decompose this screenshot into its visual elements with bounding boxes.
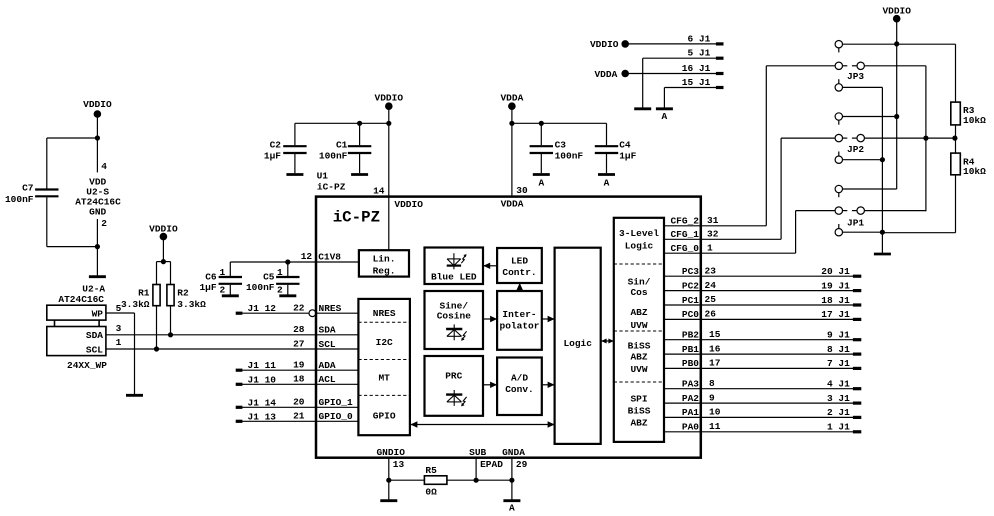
svg-text:GPIO: GPIO xyxy=(373,410,396,421)
svg-text:19: 19 xyxy=(293,360,305,371)
svg-text:3 J1: 3 J1 xyxy=(827,393,850,404)
svg-text:AT24C16C: AT24C16C xyxy=(58,294,104,305)
svg-text:5 J1: 5 J1 xyxy=(687,48,710,59)
svg-text:31: 31 xyxy=(707,215,719,226)
svg-text:R2: R2 xyxy=(177,287,189,298)
svg-text:4: 4 xyxy=(101,161,107,172)
svg-text:WP: WP xyxy=(92,308,104,319)
svg-text:VDDIO: VDDIO xyxy=(394,199,423,210)
svg-text:U1: U1 xyxy=(317,170,329,181)
svg-text:Logic: Logic xyxy=(563,338,592,349)
svg-text:J1 13: J1 13 xyxy=(248,411,277,422)
svg-text:2: 2 xyxy=(277,284,283,295)
svg-text:SCL: SCL xyxy=(86,344,103,355)
svg-text:UVW: UVW xyxy=(630,364,647,375)
svg-text:1: 1 xyxy=(277,267,283,278)
svg-text:J1 12: J1 12 xyxy=(248,303,277,314)
svg-text:JP3: JP3 xyxy=(847,71,864,82)
svg-text:SUB: SUB xyxy=(469,447,486,458)
svg-text:PC2: PC2 xyxy=(682,280,699,291)
svg-text:24XX_WP: 24XX_WP xyxy=(67,360,107,371)
svg-text:Reg.: Reg. xyxy=(373,266,396,277)
svg-text:21: 21 xyxy=(293,411,305,422)
svg-text:15: 15 xyxy=(709,329,721,340)
svg-text:VDDIO: VDDIO xyxy=(590,39,619,50)
svg-text:VDDIO: VDDIO xyxy=(149,223,178,234)
svg-text:1µF: 1µF xyxy=(619,150,636,161)
svg-text:6 J1: 6 J1 xyxy=(687,33,710,44)
svg-text:26: 26 xyxy=(705,309,717,320)
svg-text:VDDA: VDDA xyxy=(501,199,524,210)
svg-text:GND: GND xyxy=(89,207,106,218)
svg-text:PB0: PB0 xyxy=(682,358,699,369)
svg-text:1: 1 xyxy=(707,242,713,253)
svg-text:J1 10: J1 10 xyxy=(248,374,277,385)
svg-text:9: 9 xyxy=(709,392,715,403)
svg-text:PB1: PB1 xyxy=(682,344,699,355)
svg-text:PC0: PC0 xyxy=(682,309,699,320)
svg-text:GPIO_1: GPIO_1 xyxy=(319,397,354,408)
svg-text:10: 10 xyxy=(709,407,721,418)
svg-text:1: 1 xyxy=(116,337,122,348)
svg-text:U2-A: U2-A xyxy=(82,283,105,294)
svg-text:4 J1: 4 J1 xyxy=(827,379,850,390)
svg-text:100nF: 100nF xyxy=(5,194,34,205)
svg-text:1: 1 xyxy=(220,267,226,278)
svg-text:Lin.: Lin. xyxy=(373,254,396,265)
svg-text:Sin/: Sin/ xyxy=(628,277,651,288)
svg-text:0Ω: 0Ω xyxy=(425,487,437,498)
svg-text:23: 23 xyxy=(705,265,717,276)
svg-text:18: 18 xyxy=(293,374,305,385)
svg-text:PA1: PA1 xyxy=(682,407,699,418)
svg-text:UVW: UVW xyxy=(630,320,647,331)
svg-text:10kΩ: 10kΩ xyxy=(963,115,986,126)
svg-text:ABZ: ABZ xyxy=(630,418,647,429)
svg-text:A: A xyxy=(604,178,610,189)
svg-text:ABZ: ABZ xyxy=(630,307,647,318)
svg-text:2: 2 xyxy=(101,218,107,229)
svg-text:25: 25 xyxy=(705,294,717,305)
svg-text:I2C: I2C xyxy=(376,337,393,348)
svg-text:PB2: PB2 xyxy=(682,330,699,341)
svg-text:Cosine: Cosine xyxy=(437,311,472,322)
svg-text:J1 14: J1 14 xyxy=(248,397,277,408)
svg-text:17 J1: 17 J1 xyxy=(821,309,850,320)
svg-text:iC-PZ: iC-PZ xyxy=(333,208,380,226)
svg-text:C6: C6 xyxy=(205,271,217,282)
svg-text:EPAD: EPAD xyxy=(480,459,503,470)
svg-text:13: 13 xyxy=(393,459,405,470)
svg-text:1µF: 1µF xyxy=(199,282,216,293)
svg-text:100nF: 100nF xyxy=(555,150,584,161)
svg-text:29: 29 xyxy=(516,459,528,470)
svg-text:MT: MT xyxy=(378,373,390,384)
svg-text:30: 30 xyxy=(516,185,528,196)
svg-text:1µF: 1µF xyxy=(264,150,281,161)
svg-text:GPIO_0: GPIO_0 xyxy=(319,411,354,422)
svg-text:C4: C4 xyxy=(619,140,631,151)
svg-text:Blue LED: Blue LED xyxy=(431,272,477,283)
svg-text:8: 8 xyxy=(709,378,715,389)
svg-text:A/D: A/D xyxy=(511,373,528,384)
svg-text:14: 14 xyxy=(373,185,385,196)
svg-text:CFG_0: CFG_0 xyxy=(670,243,699,254)
svg-text:11: 11 xyxy=(709,421,721,432)
svg-text:C5: C5 xyxy=(263,271,275,282)
svg-text:A: A xyxy=(509,502,515,513)
svg-text:R1: R1 xyxy=(138,287,150,298)
svg-text:iC-PZ: iC-PZ xyxy=(317,182,346,193)
svg-text:VDDA: VDDA xyxy=(594,69,617,80)
svg-text:3: 3 xyxy=(116,323,122,334)
svg-text:VDDIO: VDDIO xyxy=(882,6,911,17)
svg-text:SPI: SPI xyxy=(630,394,647,405)
svg-text:ABZ: ABZ xyxy=(630,351,647,362)
svg-text:SCL: SCL xyxy=(319,339,336,350)
svg-text:2 J1: 2 J1 xyxy=(827,407,850,418)
svg-text:ACL: ACL xyxy=(319,374,336,385)
svg-text:A: A xyxy=(538,178,544,189)
svg-text:JP1: JP1 xyxy=(847,218,864,229)
svg-text:Cos: Cos xyxy=(630,287,647,298)
svg-text:PA3: PA3 xyxy=(682,379,699,390)
svg-text:20: 20 xyxy=(293,397,305,408)
svg-text:GNDA: GNDA xyxy=(502,447,525,458)
svg-text:3.3kΩ: 3.3kΩ xyxy=(121,299,150,310)
svg-text:10kΩ: 10kΩ xyxy=(963,166,986,177)
svg-text:A: A xyxy=(662,111,668,122)
svg-text:PC3: PC3 xyxy=(682,266,699,277)
svg-text:19 J1: 19 J1 xyxy=(821,280,850,291)
svg-text:C1: C1 xyxy=(336,140,348,151)
svg-text:VDDIO: VDDIO xyxy=(83,99,112,110)
svg-text:Inter-: Inter- xyxy=(502,309,536,320)
svg-text:CFG_2: CFG_2 xyxy=(670,216,699,227)
svg-text:22: 22 xyxy=(293,303,305,314)
svg-text:BiSS: BiSS xyxy=(628,341,651,352)
svg-text:27: 27 xyxy=(293,338,305,349)
svg-text:R5: R5 xyxy=(425,465,437,476)
svg-text:Logic: Logic xyxy=(625,241,654,252)
svg-text:VDDIO: VDDIO xyxy=(375,93,404,104)
svg-text:7 J1: 7 J1 xyxy=(827,358,850,369)
svg-text:VDDA: VDDA xyxy=(500,93,523,104)
svg-text:3.3kΩ: 3.3kΩ xyxy=(177,299,206,310)
svg-text:SDA: SDA xyxy=(319,325,336,336)
svg-text:BiSS: BiSS xyxy=(628,406,651,417)
svg-text:J1 11: J1 11 xyxy=(248,360,277,371)
svg-text:2: 2 xyxy=(220,284,226,295)
svg-text:polator: polator xyxy=(500,320,540,331)
svg-text:8 J1: 8 J1 xyxy=(827,344,850,355)
svg-text:NRES: NRES xyxy=(373,308,396,319)
svg-text:24: 24 xyxy=(705,280,717,291)
svg-text:C7: C7 xyxy=(22,183,34,194)
svg-text:LED: LED xyxy=(511,255,528,266)
svg-text:Conv.: Conv. xyxy=(505,384,534,395)
svg-text:ADA: ADA xyxy=(319,360,336,371)
svg-text:PA2: PA2 xyxy=(682,393,699,404)
svg-text:18 J1: 18 J1 xyxy=(821,295,850,306)
svg-text:C1V8: C1V8 xyxy=(318,252,341,263)
svg-text:12: 12 xyxy=(301,251,313,262)
svg-text:28: 28 xyxy=(293,324,305,335)
svg-text:GNDIO: GNDIO xyxy=(376,447,405,458)
svg-text:C2: C2 xyxy=(270,140,282,151)
svg-text:C3: C3 xyxy=(555,140,567,151)
svg-text:9 J1: 9 J1 xyxy=(827,330,850,341)
svg-text:16: 16 xyxy=(709,343,721,354)
svg-text:JP2: JP2 xyxy=(847,144,864,155)
svg-text:15 J1: 15 J1 xyxy=(682,77,711,88)
svg-text:Contr.: Contr. xyxy=(502,267,536,278)
svg-text:CFG_1: CFG_1 xyxy=(670,229,699,240)
svg-text:1 J1: 1 J1 xyxy=(827,422,850,433)
svg-text:SDA: SDA xyxy=(86,330,103,341)
svg-text:PA0: PA0 xyxy=(682,422,699,433)
svg-text:100nF: 100nF xyxy=(246,282,275,293)
svg-text:17: 17 xyxy=(709,358,721,369)
svg-text:NRES: NRES xyxy=(319,303,342,314)
svg-text:PC1: PC1 xyxy=(682,295,699,306)
svg-text:32: 32 xyxy=(707,229,719,240)
svg-text:PRC: PRC xyxy=(445,370,462,381)
svg-text:20 J1: 20 J1 xyxy=(821,266,850,277)
svg-text:3-Level: 3-Level xyxy=(619,228,659,239)
svg-text:100nF: 100nF xyxy=(319,150,348,161)
svg-text:16 J1: 16 J1 xyxy=(682,63,711,74)
